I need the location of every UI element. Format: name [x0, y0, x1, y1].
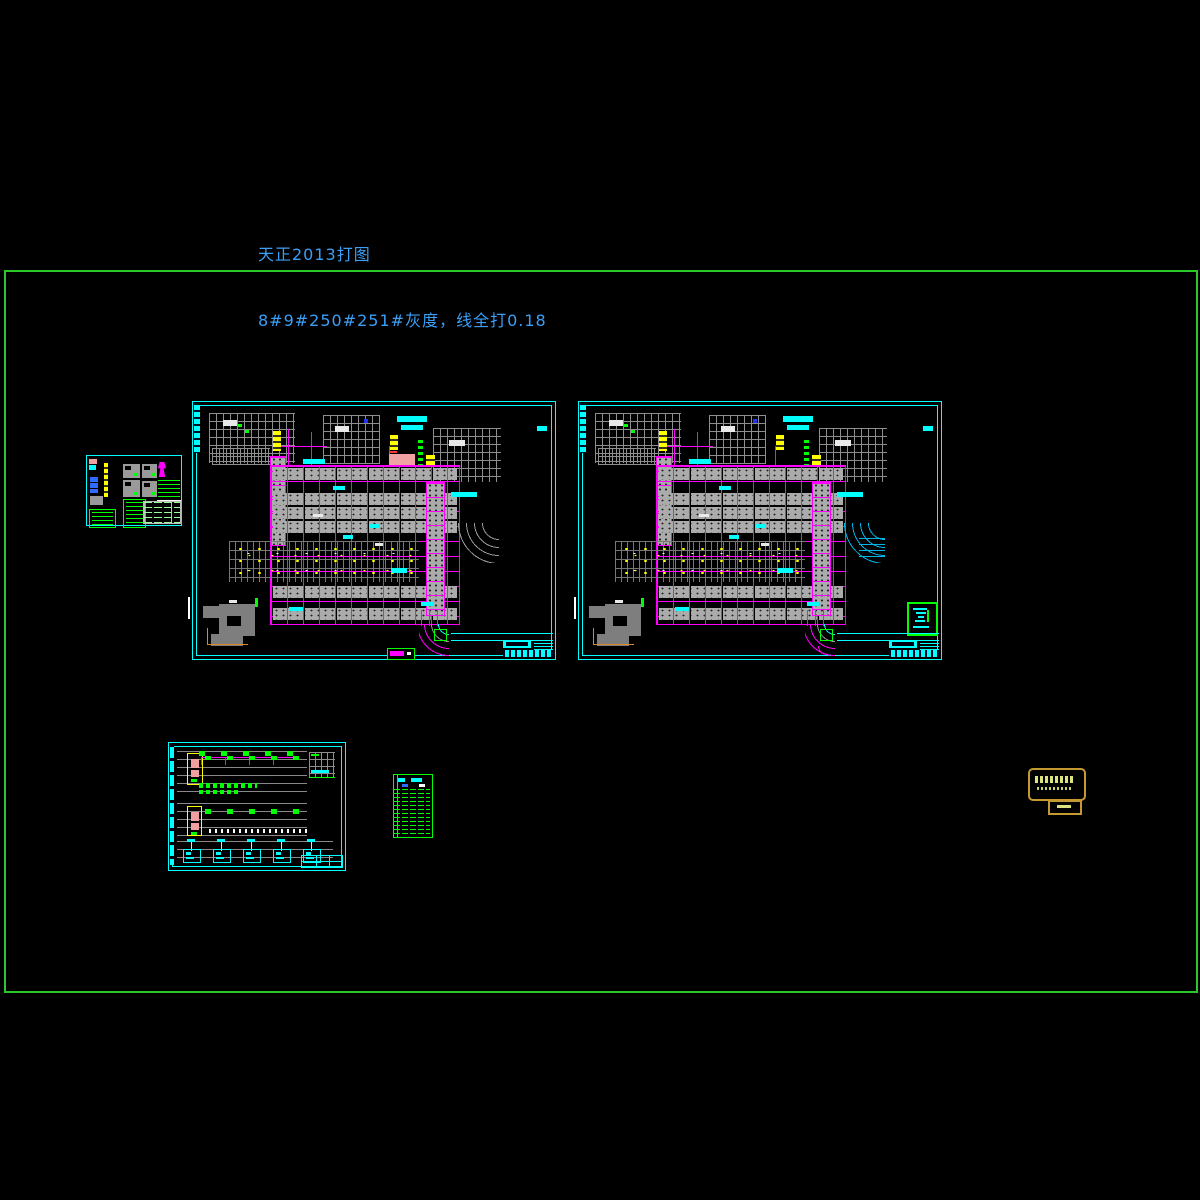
grid-line	[281, 446, 327, 447]
title-block-lines	[920, 640, 939, 650]
floor-plan-left	[192, 401, 556, 660]
footprint-outline-orange	[593, 628, 634, 645]
riser-yellow	[104, 463, 108, 497]
label-chip	[699, 514, 709, 517]
detail-room	[123, 480, 140, 497]
label-chip	[313, 514, 323, 517]
grid-line	[674, 429, 675, 465]
callout-cyan	[777, 568, 793, 573]
callout-cyan	[755, 524, 765, 528]
building-footprint	[203, 598, 261, 648]
north-symbol-box	[907, 602, 938, 636]
magenta-symbol	[158, 462, 166, 477]
label-chip	[615, 600, 623, 603]
green-tags-row	[205, 809, 305, 814]
ramp-curves	[449, 523, 499, 563]
detail-room	[142, 464, 157, 478]
building-footprint	[589, 598, 647, 648]
branch-tees-cyan	[183, 839, 323, 842]
callout-cyan	[837, 492, 863, 497]
detail-block-blue	[90, 477, 98, 482]
detail-room	[123, 464, 140, 478]
callout-cyan	[369, 524, 379, 528]
title-block-row	[889, 650, 939, 657]
title-block-row	[503, 650, 553, 657]
callout-cyan	[729, 535, 739, 539]
corridor-band	[229, 541, 419, 582]
detail-sheet-small	[86, 455, 182, 526]
red-mark	[389, 451, 397, 453]
callout-cyan	[401, 425, 423, 430]
green-mark	[624, 424, 628, 427]
margin-tick-left	[188, 597, 190, 619]
label-chip	[229, 600, 237, 603]
title-block-name-cell	[503, 640, 531, 648]
footprint-notch	[227, 616, 241, 626]
grid-line	[288, 429, 289, 465]
legend-box	[387, 648, 415, 660]
sheet-title-strip	[194, 403, 200, 453]
green-mark	[255, 598, 258, 607]
title-block	[503, 638, 553, 658]
detail-block-blue	[90, 483, 98, 488]
beam-grid	[709, 415, 766, 464]
label-chip	[609, 420, 623, 426]
detail-notes-green	[157, 479, 181, 501]
schedule-table	[393, 774, 433, 838]
green-tags-row	[205, 756, 305, 760]
callout-cyan	[333, 486, 345, 490]
label-chip	[223, 420, 237, 426]
fan-unit	[183, 849, 201, 863]
footprint-notch	[613, 616, 627, 626]
sheet-title-strip	[170, 744, 174, 865]
stall-stack	[426, 482, 445, 616]
green-note-text	[199, 783, 257, 788]
callout-cyan	[343, 535, 353, 539]
title-block	[301, 855, 343, 868]
green-note-text	[199, 790, 239, 794]
ramp-door	[820, 629, 833, 641]
title-block-name-cell	[889, 640, 917, 648]
green-mark	[641, 598, 644, 607]
fan-unit	[243, 849, 261, 863]
callout-cyan	[391, 568, 407, 573]
seal-stamp	[1028, 768, 1086, 801]
system-diagram-sheet	[168, 742, 346, 871]
terminal-dash-row	[209, 829, 309, 833]
callout-cyan	[923, 426, 933, 431]
callout-cyan	[675, 607, 689, 611]
callout-cyan	[807, 602, 819, 606]
stall-stack	[812, 482, 831, 616]
footprint-mass	[589, 606, 607, 618]
beam-grid	[598, 448, 656, 465]
callout-cyan	[537, 426, 547, 431]
label-chip	[761, 543, 769, 546]
road-extension-cyan	[859, 538, 885, 558]
footprint-outline-orange	[207, 628, 248, 645]
detail-block-cyan	[89, 465, 96, 470]
shaft-yellow	[659, 431, 667, 451]
detail-block-pink	[89, 459, 97, 464]
blue-mark	[753, 419, 757, 423]
fan-unit	[213, 849, 231, 863]
label-chip	[721, 426, 735, 432]
vehicle-ramp	[419, 624, 449, 658]
footprint-mass	[203, 606, 221, 618]
green-mark	[245, 430, 249, 433]
corridor-band	[615, 541, 805, 582]
grid-line	[667, 446, 713, 447]
fan-unit	[273, 849, 291, 863]
label-chip	[375, 543, 383, 546]
shaft-yellow	[273, 431, 281, 451]
callout-cyan	[783, 416, 813, 422]
label-chip	[449, 440, 465, 446]
callout-cyan	[451, 492, 477, 497]
equipment-box-yellow	[187, 806, 202, 836]
margin-tick-right	[574, 597, 576, 619]
title-block-lines	[534, 640, 553, 650]
detail-table	[143, 501, 181, 524]
plot-annotation-line1: 天正2013打图	[258, 244, 547, 266]
callout-cyan	[303, 459, 325, 464]
callout-cyan	[397, 416, 427, 422]
title-block	[889, 638, 939, 658]
detail-room	[142, 481, 157, 497]
green-mark	[631, 430, 635, 433]
green-mark	[238, 424, 242, 427]
detail-legend-green	[89, 509, 116, 528]
cad-plot-preview: { "annotations": { "line1": "天正2013打图", …	[0, 0, 1200, 1200]
ramp-door	[434, 629, 447, 641]
label-chip	[835, 440, 851, 446]
seal-stamp-small	[1048, 800, 1082, 815]
shaft-yellow	[776, 435, 784, 450]
callout-cyan	[421, 602, 433, 606]
detail-block-gray	[90, 496, 103, 505]
ramp-arc-magenta	[807, 646, 827, 658]
beam-grid	[212, 448, 270, 465]
shaft-yellow	[390, 435, 398, 450]
beam-grid	[323, 415, 380, 464]
sheet-title-strip	[580, 403, 586, 453]
callout-cyan	[689, 459, 711, 464]
label-chip	[335, 426, 349, 432]
callout-cyan	[719, 486, 731, 490]
callout-cyan	[289, 607, 303, 611]
floor-plan-right	[578, 401, 942, 660]
callout-cyan	[787, 425, 809, 430]
mini-detail-box	[309, 752, 335, 778]
detail-block-blue	[90, 489, 98, 493]
blue-mark	[364, 419, 368, 423]
